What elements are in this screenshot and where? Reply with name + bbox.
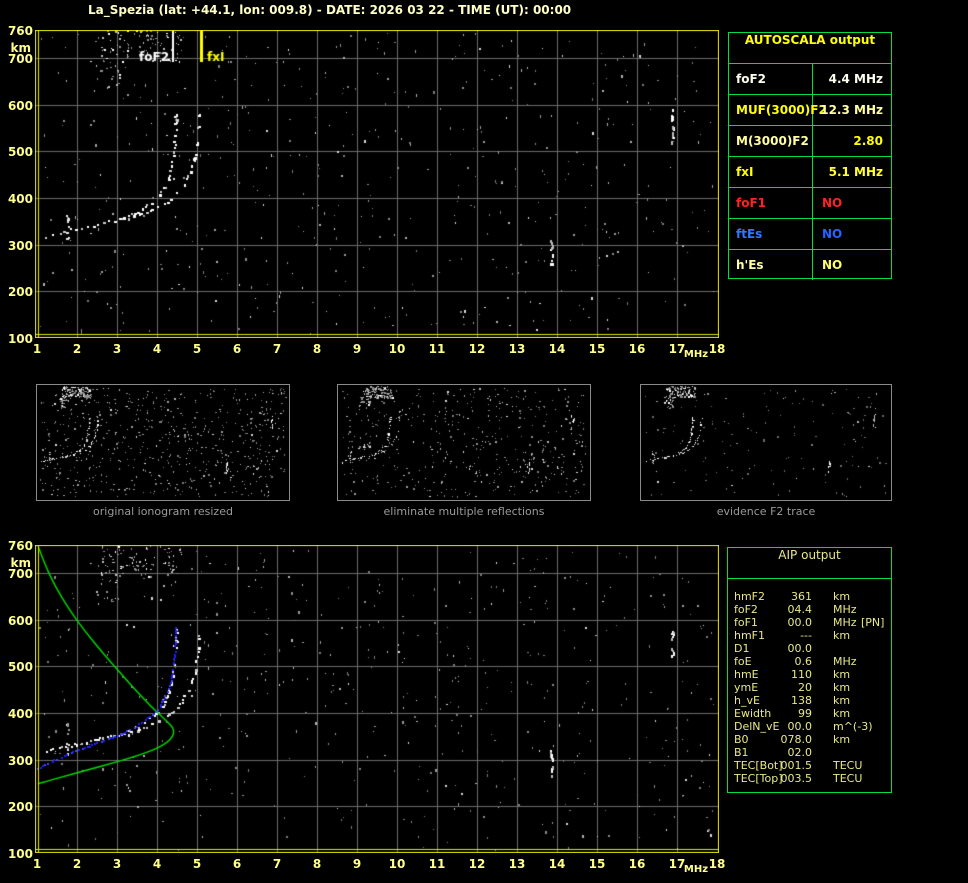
bottom-ionogram-canvas — [35, 545, 719, 853]
aip-row: B0078.0km — [728, 733, 891, 746]
y-tick-label: 760 — [0, 539, 33, 553]
x-tick-label: 7 — [264, 342, 290, 356]
x-tick-label: 5 — [184, 857, 210, 871]
aip-row-value: 20 — [766, 681, 812, 694]
x-tick-label: 4 — [144, 857, 170, 871]
autoscala-row: fxI5.1 MHz — [729, 156, 891, 187]
aip-row-unit: m^(-3) — [833, 720, 872, 733]
autoscala-row-value: NO — [813, 188, 891, 218]
autoscala-output-table: AUTOSCALA output foF24.4 MHzMUF(3000)F21… — [728, 32, 892, 279]
autoscala-row-label: fxI — [729, 157, 813, 187]
autoscala-row-value: 2.80 — [813, 126, 891, 156]
x-tick-label: 10 — [384, 857, 410, 871]
aip-row-unit: km — [833, 590, 850, 603]
aip-row-label: hmE — [734, 668, 759, 681]
x-tick-label: 1 — [24, 342, 50, 356]
aip-row-label: h_vE — [734, 694, 760, 707]
autoscala-row-value: NO — [813, 219, 891, 249]
autoscala-row: h'EsNO — [729, 249, 891, 280]
x-tick-label: 4 — [144, 342, 170, 356]
aip-row-label: B0 — [734, 733, 749, 746]
aip-row-label: foE — [734, 655, 752, 668]
aip-row-value: 04.4 — [766, 603, 812, 616]
aip-row-label: D1 — [734, 642, 749, 655]
y-tick-label: 500 — [0, 660, 33, 674]
aip-row-unit: TECU — [833, 772, 862, 785]
x-tick-label: 15 — [584, 857, 610, 871]
aip-row-value: 078.0 — [766, 733, 812, 746]
y-tick-label: 200 — [0, 800, 33, 814]
aip-row: B102.0 — [728, 746, 891, 759]
x-tick-label: 10 — [384, 342, 410, 356]
x-tick-label: 14 — [544, 342, 570, 356]
x-tick-label: 16 — [624, 342, 650, 356]
x-tick-label: 9 — [344, 342, 370, 356]
aip-row: Ewidth99km — [728, 707, 891, 720]
top-ionogram-canvas — [35, 30, 719, 338]
aip-row: DelN_vE00.0m^(-3) — [728, 720, 891, 733]
aip-row-value: 003.5 — [766, 772, 812, 785]
y-tick-label: 760 — [0, 24, 33, 38]
x-tick-label: 1 — [24, 857, 50, 871]
aip-row-unit: MHz — [833, 603, 857, 616]
autoscala-table-rows: foF24.4 MHzMUF(3000)F212.3 MHzM(3000)F22… — [729, 63, 891, 280]
panel-caption: evidence F2 trace — [640, 505, 892, 518]
aip-row-value: 99 — [766, 707, 812, 720]
aip-row: hmF1---km — [728, 629, 891, 642]
aip-row: foF204.4MHz — [728, 603, 891, 616]
aip-table-title: AIP output — [728, 548, 891, 579]
aip-row: TEC[Bot]001.5TECU — [728, 759, 891, 772]
autoscala-row: foF1NO — [729, 187, 891, 218]
y-tick-label: 600 — [0, 99, 33, 113]
y-tick-label: 300 — [0, 754, 33, 768]
x-tick-label: 12 — [464, 857, 490, 871]
y-tick-label: 400 — [0, 192, 33, 206]
panel-original-ionogram: original ionogram resized — [36, 384, 290, 501]
panel-original-canvas — [36, 384, 290, 501]
x-tick-label: 2 — [64, 857, 90, 871]
panel-evidence-f2: evidence F2 trace — [640, 384, 892, 501]
x-tick-label: 3 — [104, 857, 130, 871]
autoscala-table-title: AUTOSCALA output — [729, 33, 891, 63]
x-tick-label: 6 — [224, 857, 250, 871]
aip-row-unit: km — [833, 733, 850, 746]
aip-row-label: foF1 — [734, 616, 758, 629]
page-title: La_Spezia (lat: +44.1, lon: 009.8) - DAT… — [88, 3, 571, 17]
x-tick-label: 13 — [504, 857, 530, 871]
y-tick-label: 500 — [0, 145, 33, 159]
autoscala-row: ftEsNO — [729, 218, 891, 249]
x-tick-label: 11 — [424, 857, 450, 871]
aip-row-value: 02.0 — [766, 746, 812, 759]
panel-evidence-canvas — [640, 384, 892, 501]
y-tick-label: 400 — [0, 707, 33, 721]
aip-row: foF100.0MHz[PN] — [728, 616, 891, 629]
aip-row-label: ymE — [734, 681, 758, 694]
autoscala-row: MUF(3000)F212.3 MHz — [729, 94, 891, 125]
autoscala-row-label: M(3000)F2 — [729, 126, 813, 156]
panel-caption: original ionogram resized — [36, 505, 290, 518]
aip-row: foE0.6MHz — [728, 655, 891, 668]
autoscala-row-value: NO — [813, 250, 891, 280]
x-tick-label: 15 — [584, 342, 610, 356]
aip-row-value: 361 — [766, 590, 812, 603]
x-tick-label: 11 — [424, 342, 450, 356]
autoscala-row: foF24.4 MHz — [729, 63, 891, 94]
x-tick-label: 6 — [224, 342, 250, 356]
x-tick-label: 7 — [264, 857, 290, 871]
aip-row-value: 00.0 — [766, 642, 812, 655]
autoscala-row-value: 12.3 MHz — [813, 95, 891, 125]
aip-row: hmE110km — [728, 668, 891, 681]
x-tick-label: 16 — [624, 857, 650, 871]
autoscala-row-label: foF1 — [729, 188, 813, 218]
x-axis-unit-label: MHz — [683, 349, 709, 360]
aip-row-label: hmF1 — [734, 629, 765, 642]
x-tick-label: 8 — [304, 342, 330, 356]
y-axis-unit-label: km — [0, 556, 31, 570]
x-tick-label: 8 — [304, 857, 330, 871]
aip-table-rows: hmF2361kmfoF204.4MHzfoF100.0MHz[PN]hmF1-… — [728, 590, 891, 785]
aip-row-unit: km — [833, 668, 850, 681]
autoscala-window: La_Spezia (lat: +44.1, lon: 009.8) - DAT… — [0, 0, 968, 883]
aip-row-label: foF2 — [734, 603, 758, 616]
x-tick-label: 12 — [464, 342, 490, 356]
aip-row: TEC[Top]003.5TECU — [728, 772, 891, 785]
autoscala-row-label: MUF(3000)F2 — [729, 95, 813, 125]
x-tick-label: 5 — [184, 342, 210, 356]
aip-row-value: 00.0 — [766, 616, 812, 629]
y-tick-label: 600 — [0, 614, 33, 628]
aip-row-unit: TECU — [833, 759, 862, 772]
aip-output-table: AIP output hmF2361kmfoF204.4MHzfoF100.0M… — [727, 547, 892, 793]
autoscala-row-label: ftEs — [729, 219, 813, 249]
aip-row: hmF2361km — [728, 590, 891, 603]
y-axis-unit-label: km — [0, 41, 31, 55]
aip-row-unit: km — [833, 629, 850, 642]
x-axis-unit-label: MHz — [683, 864, 709, 875]
x-tick-label: 14 — [544, 857, 570, 871]
aip-row-value: 110 — [766, 668, 812, 681]
aip-row-value: 001.5 — [766, 759, 812, 772]
x-tick-label: 9 — [344, 857, 370, 871]
aip-row-extra: [PN] — [861, 616, 884, 629]
aip-row: D100.0 — [728, 642, 891, 655]
autoscala-row-label: h'Es — [729, 250, 813, 280]
aip-row-label: hmF2 — [734, 590, 765, 603]
aip-row-value: 138 — [766, 694, 812, 707]
aip-row-value: 0.6 — [766, 655, 812, 668]
aip-row-unit: km — [833, 681, 850, 694]
autoscala-row-value: 5.1 MHz — [813, 157, 891, 187]
y-tick-label: 300 — [0, 239, 33, 253]
autoscala-row-value: 4.4 MHz — [813, 64, 891, 94]
aip-row-unit: MHz — [833, 616, 857, 629]
autoscala-row-label: foF2 — [729, 64, 813, 94]
panel-eliminate-reflections: eliminate multiple reflections — [337, 384, 591, 501]
aip-row-label: B1 — [734, 746, 749, 759]
aip-row-value: 00.0 — [766, 720, 812, 733]
panel-eliminate-canvas — [337, 384, 591, 501]
aip-row: ymE20km — [728, 681, 891, 694]
x-tick-label: 3 — [104, 342, 130, 356]
aip-row-unit: MHz — [833, 655, 857, 668]
y-tick-label: 200 — [0, 285, 33, 299]
autoscala-row: M(3000)F22.80 — [729, 125, 891, 156]
aip-row-unit: km — [833, 707, 850, 720]
aip-row-unit: km — [833, 694, 850, 707]
x-tick-label: 13 — [504, 342, 530, 356]
x-tick-label: 2 — [64, 342, 90, 356]
aip-row-value: --- — [766, 629, 812, 642]
aip-row: h_vE138km — [728, 694, 891, 707]
panel-caption: eliminate multiple reflections — [337, 505, 591, 518]
